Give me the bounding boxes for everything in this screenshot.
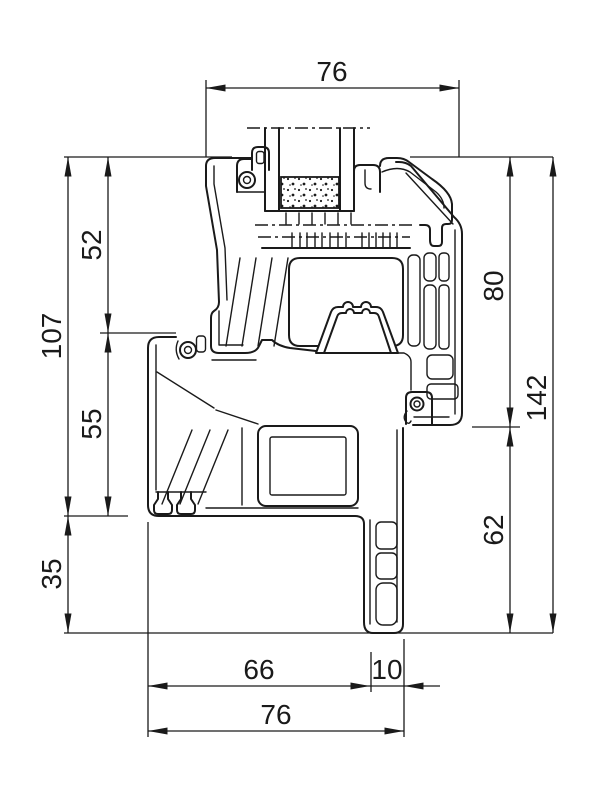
dim-label-right-lower: 62 (478, 514, 509, 545)
glazing-unit (237, 128, 380, 224)
glazing-bead-left-gasket (239, 172, 255, 188)
frame-right-lower-chambers (427, 355, 458, 399)
sash-right-chambers (408, 253, 449, 349)
dim-label-right-total: 142 (521, 375, 552, 422)
dimensions: 76 52 107 55 35 80 62 (36, 56, 553, 737)
glazing-bead-left-gasket-core (244, 177, 251, 184)
glazing-bead-left-tab (252, 147, 269, 170)
dim-label-left-upper: 52 (76, 229, 107, 260)
frame-rebate-slant (216, 410, 258, 424)
frame-upstand-base (398, 353, 411, 390)
frame-steel-chamber (258, 426, 358, 506)
dim-label-left-total: 107 (36, 313, 67, 360)
dim-label-bottom-frame: 66 (243, 654, 274, 685)
dimension-right-lower: 62 (478, 427, 510, 633)
drawing-canvas: 76 52 107 55 35 80 62 (0, 0, 600, 800)
dimension-left-bottom: 35 (36, 516, 68, 633)
dimension-right-total: 142 (521, 157, 553, 633)
sash-bridge-teeth (292, 233, 397, 247)
frame-inner-wall-slant (157, 372, 214, 408)
glass-spacer-bar (281, 177, 339, 208)
frame-nose-chambers (370, 430, 397, 625)
frame-cap-inner (406, 173, 453, 224)
frame-dovetail-feet (154, 492, 195, 514)
dimension-left-middle: 55 (76, 333, 108, 516)
glazing-upstand-right-clip (365, 170, 371, 189)
dim-label-bottom-step: 10 (371, 654, 402, 685)
frame-profile (148, 162, 462, 633)
frame-outer-contour (148, 337, 403, 633)
sash-inner-right-wall (382, 169, 444, 209)
dimension-bottom-total: 76 (148, 699, 404, 731)
sash-diagonal-struts (226, 258, 288, 346)
window-profile-section-drawing: 76 52 107 55 35 80 62 (0, 0, 600, 800)
dimension-top-width: 76 (206, 56, 459, 88)
glazing-bead-left-slot (257, 152, 265, 164)
dim-label-left-bottom: 35 (36, 558, 67, 589)
dimension-right-upper: 80 (478, 157, 510, 427)
dim-label-right-upper: 80 (478, 270, 509, 301)
dim-label-bottom-total: 76 (260, 699, 291, 730)
frame-diagonal-struts (162, 428, 242, 505)
dimension-left-upper: 52 (76, 157, 108, 333)
dimension-bottom-step: 10 (370, 654, 440, 686)
frame-corner-seal (176, 336, 205, 359)
dim-label-top-width: 76 (316, 56, 347, 87)
dimension-bottom-frame: 66 (148, 654, 370, 686)
dimension-left-total: 107 (36, 157, 68, 516)
frame-steel-insert (270, 437, 346, 495)
dim-label-left-middle: 55 (76, 408, 107, 439)
glass-setting-hatches (286, 213, 351, 224)
sash-inner-left-wall (214, 166, 227, 300)
